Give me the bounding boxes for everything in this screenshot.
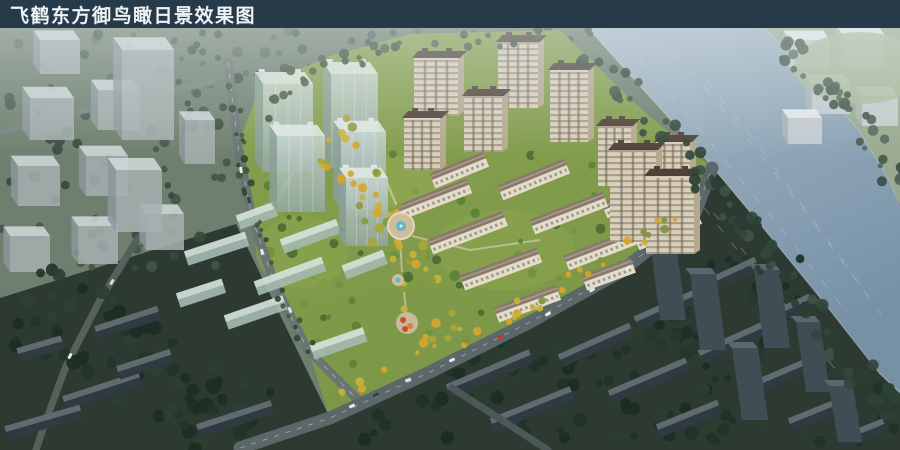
tree xyxy=(888,424,899,435)
tree xyxy=(223,159,231,167)
tree xyxy=(13,318,24,329)
tree xyxy=(719,213,727,221)
atmosphere-haze xyxy=(0,28,900,158)
tree xyxy=(574,413,588,427)
tree xyxy=(782,282,790,290)
tree xyxy=(856,368,869,381)
tree xyxy=(236,163,241,168)
tree xyxy=(403,272,414,283)
tree xyxy=(654,339,667,352)
tree xyxy=(310,340,316,346)
tree xyxy=(61,181,70,190)
tree xyxy=(565,271,571,277)
tree xyxy=(435,392,449,406)
tree xyxy=(396,203,402,209)
tree xyxy=(681,327,693,339)
tree xyxy=(761,247,772,258)
tree xyxy=(601,262,606,267)
tree xyxy=(373,208,382,217)
tree xyxy=(843,367,853,377)
tree xyxy=(47,312,57,322)
tree xyxy=(348,297,355,304)
tree xyxy=(422,334,428,340)
tree xyxy=(725,256,732,263)
tree xyxy=(211,174,218,181)
tree xyxy=(208,405,219,416)
tree xyxy=(217,394,228,405)
tree xyxy=(660,225,669,234)
tree xyxy=(699,383,709,393)
tree xyxy=(826,348,833,355)
tree xyxy=(415,351,419,355)
context-block-front xyxy=(10,236,50,272)
tree xyxy=(372,169,379,176)
tree xyxy=(106,358,116,368)
tree xyxy=(490,391,503,404)
tree xyxy=(577,267,583,273)
tree xyxy=(168,192,175,199)
tree xyxy=(779,273,786,280)
tree xyxy=(420,252,428,260)
tree xyxy=(423,266,428,271)
tree xyxy=(514,298,521,305)
tree xyxy=(379,419,391,431)
tree xyxy=(659,407,668,416)
tree xyxy=(888,411,898,421)
tree xyxy=(294,335,301,342)
tree xyxy=(441,431,454,444)
tree xyxy=(559,287,565,293)
dark-tower-top xyxy=(685,268,716,274)
tree xyxy=(287,215,292,220)
context-block-front xyxy=(116,170,162,232)
tree xyxy=(293,325,298,330)
tree xyxy=(816,299,828,311)
tree xyxy=(432,255,441,264)
tree xyxy=(731,219,740,228)
tree xyxy=(233,426,247,440)
tree xyxy=(266,388,275,397)
tree xyxy=(412,188,419,195)
tree xyxy=(259,228,263,232)
roof-bump xyxy=(343,165,349,168)
tree xyxy=(278,223,287,232)
tree xyxy=(445,335,452,342)
tree xyxy=(518,239,523,244)
tree xyxy=(555,408,566,419)
tree xyxy=(287,314,291,318)
tree xyxy=(702,363,709,370)
tree xyxy=(337,174,346,183)
tree xyxy=(375,223,385,233)
tree xyxy=(254,222,259,227)
tree xyxy=(368,238,378,248)
tree xyxy=(411,260,419,268)
tree xyxy=(623,237,631,245)
tree xyxy=(381,367,387,373)
tree xyxy=(320,314,327,321)
tree xyxy=(379,374,383,378)
tree xyxy=(358,250,364,256)
tree xyxy=(390,256,397,263)
tree xyxy=(401,305,408,312)
tree xyxy=(559,432,570,443)
haze-overlay xyxy=(0,28,900,158)
tree xyxy=(429,335,437,343)
tree xyxy=(180,373,191,384)
tree xyxy=(449,270,460,281)
context-block xyxy=(108,158,162,232)
tree xyxy=(300,301,307,308)
tree xyxy=(770,261,776,267)
context-block-top xyxy=(108,158,162,170)
tree xyxy=(348,171,354,177)
tree xyxy=(757,269,764,276)
tree xyxy=(528,269,537,278)
tree xyxy=(167,338,178,349)
tree xyxy=(880,411,889,420)
tree xyxy=(36,269,45,278)
tree xyxy=(554,342,564,352)
tree xyxy=(538,297,546,305)
tree xyxy=(264,237,269,242)
roof-core xyxy=(682,166,688,169)
play-equipment xyxy=(400,317,406,323)
context-block xyxy=(3,226,50,272)
tree xyxy=(644,329,657,342)
tree xyxy=(416,394,430,408)
tree xyxy=(811,329,822,340)
tree xyxy=(654,217,660,223)
tree xyxy=(63,297,79,313)
tree xyxy=(432,344,436,348)
tree xyxy=(868,394,880,406)
tree xyxy=(335,281,343,289)
tree xyxy=(844,377,856,389)
tree xyxy=(556,276,561,281)
tree xyxy=(585,271,591,277)
tree xyxy=(296,216,302,222)
context-block xyxy=(11,156,60,206)
tree xyxy=(217,174,226,183)
tree xyxy=(306,349,311,354)
tree xyxy=(642,240,648,246)
tree xyxy=(239,377,249,387)
tree xyxy=(187,384,199,396)
title-bar: 飞鹤东方御鸟瞰日景效果图 xyxy=(0,0,900,28)
tree xyxy=(724,375,732,383)
tree xyxy=(170,252,179,261)
tree xyxy=(418,240,428,250)
tree xyxy=(630,432,638,440)
tree xyxy=(604,376,614,386)
tree xyxy=(689,174,701,186)
tree xyxy=(329,239,338,248)
tree xyxy=(877,176,887,186)
roof-core xyxy=(654,166,660,169)
tree xyxy=(319,279,328,288)
tree xyxy=(269,260,274,265)
tree xyxy=(595,379,603,387)
tree xyxy=(207,361,218,372)
tree xyxy=(538,355,549,366)
tree xyxy=(790,271,798,279)
tree xyxy=(796,254,805,263)
tree xyxy=(707,260,716,269)
context-block-side xyxy=(108,158,116,232)
tree xyxy=(613,350,622,359)
context-block-front xyxy=(78,226,118,264)
tree xyxy=(163,408,174,419)
aerial-rendering xyxy=(0,0,900,450)
tree xyxy=(691,184,700,193)
tree xyxy=(661,217,668,224)
tree xyxy=(458,327,463,332)
tree xyxy=(473,327,482,336)
tree xyxy=(409,251,416,258)
tree xyxy=(356,202,363,209)
tree xyxy=(194,232,205,243)
tree xyxy=(258,233,262,237)
tree xyxy=(297,317,303,323)
tree xyxy=(621,402,633,414)
tree xyxy=(451,325,457,331)
context-block-top xyxy=(3,226,50,236)
tree xyxy=(720,423,729,432)
tree xyxy=(97,290,105,298)
tree xyxy=(530,304,536,310)
context-block-front xyxy=(18,166,60,206)
tree xyxy=(762,424,770,432)
tree xyxy=(326,314,331,319)
roof-bump xyxy=(371,165,377,168)
tree xyxy=(248,179,255,186)
fountain-jet xyxy=(400,225,403,228)
tree xyxy=(640,229,647,236)
tree xyxy=(536,305,543,312)
tree xyxy=(867,359,878,370)
tree xyxy=(333,392,341,400)
screenshot: 飞鹤东方御鸟瞰日景效果图 xyxy=(0,0,900,450)
tree xyxy=(146,261,157,272)
tree xyxy=(109,295,118,304)
tree xyxy=(754,216,761,223)
render-title: 飞鹤东方御鸟瞰日景效果图 xyxy=(0,1,256,28)
dark-tower-top xyxy=(727,342,758,348)
tree xyxy=(684,426,698,440)
tree xyxy=(571,228,576,233)
tree xyxy=(681,345,693,357)
tree xyxy=(396,242,404,250)
tree xyxy=(53,269,66,282)
tree xyxy=(350,180,357,187)
tree xyxy=(242,191,247,196)
play-equipment xyxy=(402,326,408,332)
tree xyxy=(349,360,357,368)
tree xyxy=(512,315,518,321)
tree xyxy=(727,202,733,208)
tree xyxy=(326,395,332,401)
tree xyxy=(471,209,480,218)
tree xyxy=(77,283,88,294)
tree xyxy=(881,382,890,391)
tree xyxy=(373,192,379,198)
tree xyxy=(462,335,471,344)
tree xyxy=(506,319,512,325)
tree xyxy=(596,224,606,234)
tree xyxy=(823,328,831,336)
tree xyxy=(167,362,179,374)
tree xyxy=(712,376,720,384)
tree xyxy=(180,421,189,430)
tree xyxy=(478,309,485,316)
tree xyxy=(427,276,436,285)
tree xyxy=(132,265,139,272)
tree xyxy=(673,217,678,222)
tree xyxy=(206,378,222,394)
tree xyxy=(814,436,826,448)
tree xyxy=(711,177,723,189)
tree xyxy=(358,433,371,446)
tree xyxy=(211,261,219,269)
tree xyxy=(360,194,366,200)
tree xyxy=(20,295,34,309)
tree xyxy=(280,303,285,308)
play-equipment xyxy=(407,323,413,329)
tree xyxy=(324,164,331,171)
tree xyxy=(30,316,40,326)
tree xyxy=(78,273,89,284)
tree xyxy=(362,218,369,225)
tree xyxy=(113,395,123,405)
tree xyxy=(497,380,506,389)
tree xyxy=(798,429,809,440)
tree xyxy=(280,288,285,293)
tree xyxy=(81,365,95,379)
tree xyxy=(706,433,717,444)
tree xyxy=(654,322,661,329)
tree xyxy=(456,282,463,289)
tree xyxy=(622,345,631,354)
tree xyxy=(358,385,366,393)
tree xyxy=(370,430,377,437)
tree xyxy=(448,309,455,316)
tree xyxy=(358,183,367,192)
tree xyxy=(607,429,620,442)
tree xyxy=(317,158,322,163)
tree xyxy=(723,228,736,241)
tree xyxy=(791,299,799,307)
tree xyxy=(275,296,281,302)
tree xyxy=(89,264,96,271)
tree xyxy=(165,182,172,189)
tree xyxy=(801,301,810,310)
tree xyxy=(588,162,595,169)
tree xyxy=(242,167,250,175)
small-fountain xyxy=(396,278,401,283)
tree xyxy=(738,230,747,239)
tree xyxy=(431,318,441,328)
tree xyxy=(48,290,58,300)
